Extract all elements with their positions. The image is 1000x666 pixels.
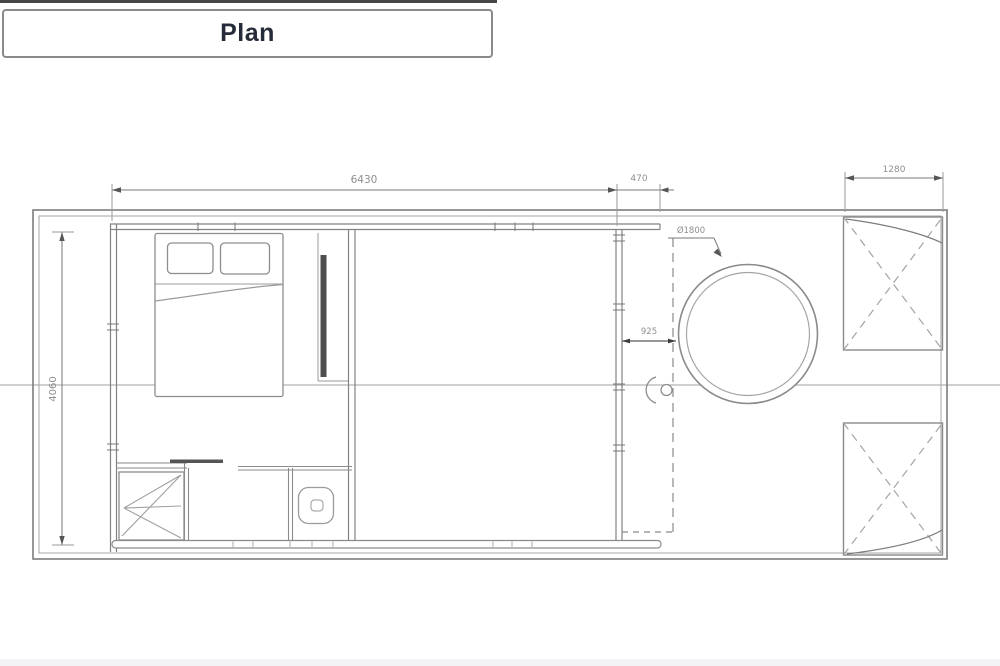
dim-label-side-overhang: 470 (630, 174, 647, 184)
bottom-strip (0, 659, 1000, 666)
floor-plan-drawing: 6430 470 1280 4060 (0, 0, 1000, 666)
dim-tub-clearance: 925 (622, 327, 676, 343)
round-hot-tub (679, 265, 818, 404)
dim-tub-diameter: Ø1800 (668, 225, 722, 257)
dim-label-cabin-length: 6430 (351, 174, 378, 186)
dim-label-deck-width: 1280 (883, 165, 906, 175)
dim-label-cabin-depth: 4060 (48, 376, 59, 401)
bathroom-sliding-door (170, 460, 223, 464)
hatch-swing-curve-bottom (847, 530, 942, 554)
dim-cabin-length: 6430 (112, 174, 617, 226)
double-bed (155, 234, 283, 397)
floor-plan-page: Plan (0, 0, 1000, 666)
bottom-wall (112, 541, 661, 549)
dim-label-tub-clearance: 925 (641, 327, 657, 337)
door-leaf (321, 255, 327, 377)
deck-hatch-top (844, 217, 943, 350)
outdoor-fixture (646, 377, 672, 403)
toilet (299, 488, 334, 524)
dim-label-tub-diameter: Ø1800 (677, 225, 705, 236)
dim-deck-width: 1280 (845, 165, 943, 212)
dim-cabin-depth: 4060 (48, 232, 74, 545)
shower-tray (119, 472, 184, 540)
pillow-left (168, 243, 214, 274)
pillow-right (221, 243, 270, 274)
sliding-pocket-door (318, 233, 348, 381)
deck-hatch-bottom (844, 423, 943, 555)
bathroom (116, 460, 352, 542)
dim-side-overhang: 470 (617, 174, 674, 212)
